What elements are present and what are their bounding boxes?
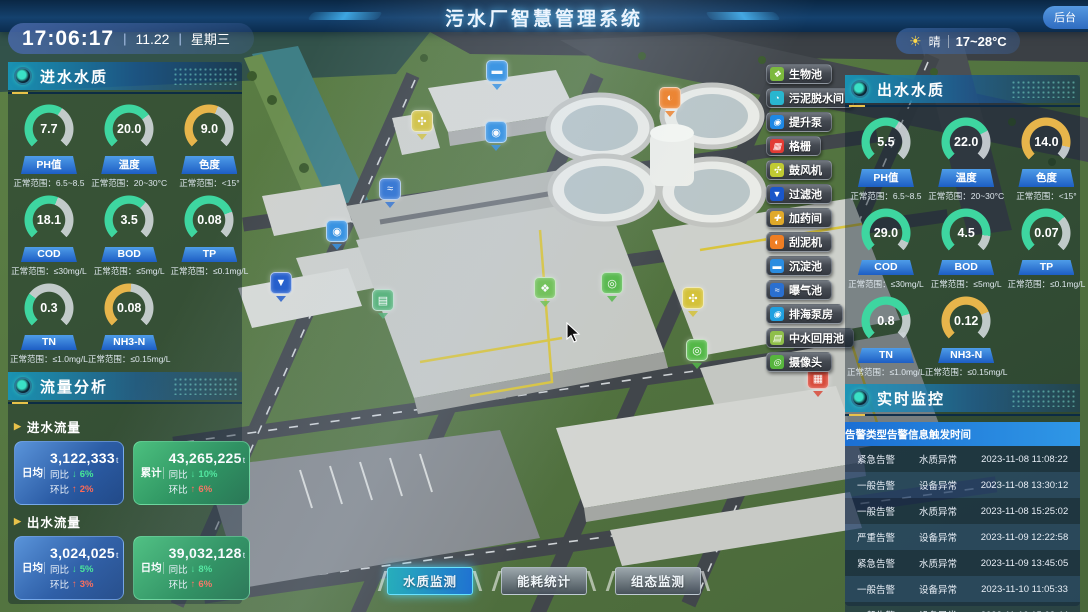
map-marker[interactable]: ▤ [372,289,394,319]
flow-card: 日均 3,122,333t 同比↓6% 环比↑2% [14,441,124,505]
divider [948,35,949,48]
section-icon [851,80,869,98]
flow-section-name: 出水流量 [27,512,81,531]
facility-button[interactable]: ◎ 摄像头 [766,352,832,372]
facility-label: 曝气池 [789,282,822,298]
facility-icon: ◔ [770,91,784,105]
arrow-down-icon: ↓ [72,469,77,480]
flow-card-body: 43,265,225t 同比↓10% 环比↑6% [169,450,246,496]
datetime-bar: 17:06:17 | 11.22 | 星期三 [8,23,254,54]
gauge-range: 正常范围：≤0.15mg/L [925,366,1008,378]
mom-line: 环比↑6% [169,482,246,496]
gauge-ring-wrap: 14.0 [1021,117,1071,167]
marker-icon: ▤ [372,289,394,311]
facility-button[interactable]: ◔ 污泥脱水间 [766,88,854,108]
facility-label: 中水回用池 [789,330,844,346]
facility-label: 鼓风机 [789,162,822,178]
marker-arrow-icon [491,145,501,151]
marker-icon: ❖ [534,277,556,299]
alarm-col-header: 告警类型 [845,427,887,442]
map-marker[interactable]: ◎ [686,339,708,369]
facility-label: 加药间 [789,210,822,226]
bottom-tab-label: 能耗统计 [517,575,571,589]
effluent-panel: 出水水质 5.5 PH值 正常范围：6.5~8.5 22.0 温度 正常范围：2… [845,75,1080,606]
yoy-line: 同比↓6% [50,467,119,481]
gauge-value: 20.0 [104,104,154,154]
header-deco-right [705,12,781,20]
alarm-info: 水质异常 [907,452,969,466]
gauge: 0.3 TN 正常范围：≤1.0mg/L [10,283,88,365]
alarm-row[interactable]: 一般告警 设备异常 2023-11-08 13:30:12 [845,472,1080,498]
header-deco-left [307,12,383,20]
gauge-range: 正常范围：≤0.15mg/L [88,353,171,365]
flow-value: 3,122,333t [50,450,119,466]
section-underline [8,402,242,404]
facility-list: ❖ 生物池 ◔ 污泥脱水间 ◉ 提升泵 ▦ 格栅 ✣ 鼓风机 ▼ 过滤池 ✚ 加… [766,64,854,372]
flow-card-body: 3,024,025t 同比↓5% 环比↑3% [50,545,119,591]
map-marker[interactable]: ✣ [682,287,704,317]
section-underline [8,92,242,94]
gauge-label: PH值 [21,156,77,174]
marker-arrow-icon [692,363,702,369]
facility-button[interactable]: ✚ 加药间 [766,208,832,228]
gauge-value: 0.12 [941,296,991,346]
gauge: 0.07 TP 正常范围：≤0.1mg/L [1008,208,1086,290]
facility-icon: ◉ [770,115,784,129]
section-icon [14,377,32,395]
gauge: 0.08 NH3-N 正常范围：≤0.15mg/L [88,283,171,365]
facility-label: 污泥脱水间 [789,90,844,106]
arrow-up-icon: ↑ [191,484,196,495]
bottom-tab[interactable]: 能耗统计 [501,567,587,595]
separator: | [123,31,126,46]
mom-line: 环比↑2% [50,482,119,496]
section-header-monitor: 实时监控 [845,384,1080,412]
alarm-time: 2023-11-08 15:25:02 [969,506,1080,517]
facility-icon: ✚ [770,211,784,225]
gauge-ring-wrap: 5.5 [861,117,911,167]
marker-icon: ▼ [270,272,292,294]
flow-section-label: ▶ 进水流量 [8,410,242,441]
marker-icon: ◎ [601,272,623,294]
alarm-info: 设备异常 [907,478,969,492]
alarm-row[interactable]: 一般告警 水质异常 2023-11-08 15:25:02 [845,498,1080,524]
page-title: 污水厂智慧管理系统 [445,4,643,31]
gauge: 22.0 温度 正常范围：20~30°C [925,117,1008,202]
gauge-value: 0.07 [1021,208,1071,258]
weather-temp: 17~28°C [956,34,1007,49]
marker-arrow-icon [813,391,823,397]
alarm-time: 2023-11-09 12:22:58 [969,532,1080,543]
alarm-info: 设备异常 [907,608,969,612]
flow-section-label: ▶ 出水流量 [8,505,242,536]
alarm-row[interactable]: 一般告警 设备异常 2023-11-10 11:05:33 [845,576,1080,602]
arrow-up-icon: ↑ [72,579,77,590]
gauge-ring-wrap: 0.3 [24,283,74,333]
facility-button[interactable]: ◐ 刮泥机 [766,232,832,252]
gauge-label: BOD [101,247,157,262]
facility-button[interactable]: ▼ 过滤池 [766,184,832,204]
marker-arrow-icon [332,244,342,250]
marker-arrow-icon [385,202,395,208]
facility-label: 刮泥机 [789,234,822,250]
weather-bar: ☀ 晴 17~28°C [896,28,1020,54]
alarm-type: 一般告警 [845,608,907,612]
marker-icon: ◉ [485,121,507,143]
flow-card-body: 39,032,128t 同比↓8% 环比↑6% [169,545,246,591]
yoy-line: 同比↓8% [169,562,246,576]
alarm-col-header: 告警信息 [887,427,929,442]
yoy-line: 同比↓5% [50,562,119,576]
gauge-label: 温度 [938,169,994,187]
marker-icon: ◐ [659,87,681,109]
backstage-button[interactable]: 后台 [1043,6,1088,29]
gauge-label: 温度 [101,156,157,174]
gauge-ring-wrap: 3.5 [104,195,154,245]
section-icon [14,67,32,85]
gauge-label: 色度 [1018,169,1074,187]
flow-card: 日均 39,032,128t 同比↓8% 环比↑6% [133,536,251,600]
influent-gauges: 7.7 PH值 正常范围：6.5~8.5 20.0 温度 正常范围：20~30°… [8,100,242,365]
gauge: 3.5 BOD 正常范围：≤5mg/L [88,195,171,277]
marker-arrow-icon [665,111,675,117]
gauge-value: 14.0 [1021,117,1071,167]
facility-label: 沉淀池 [789,258,822,274]
gauge-label: NH3-N [101,335,157,350]
flow-card-tag: 日均 [21,562,45,575]
gauge: 0.12 NH3-N 正常范围：≤0.15mg/L [925,296,1008,378]
sun-icon: ☀ [909,34,922,48]
gauge-value: 0.08 [184,195,234,245]
alarm-type: 严重告警 [845,530,907,544]
marker-arrow-icon [492,84,502,90]
facility-button[interactable]: ◉ 提升泵 [766,112,832,132]
influent-panel: 进水水质 7.7 PH值 正常范围：6.5~8.5 20.0 温度 正常范围：2… [8,62,242,604]
gauge: 5.5 PH值 正常范围：6.5~8.5 [847,117,925,202]
arrow-up-icon: ↑ [72,484,77,495]
gauge-value: 9.0 [184,104,234,154]
triangle-icon: ▶ [14,421,22,432]
facility-icon: ❖ [770,67,784,81]
bottom-tab-bar: 水质监测 能耗统计 组态监测 [387,567,701,595]
facility-button[interactable]: ▤ 中水回用池 [766,328,854,348]
gauge-label: PH值 [858,169,914,187]
gauge: 4.5 BOD 正常范围：≤5mg/L [925,208,1008,290]
gauge-ring-wrap: 7.7 [24,104,74,154]
marker-icon: ✣ [682,287,704,309]
gauge-value: 4.5 [941,208,991,258]
facility-button[interactable]: ✣ 鼓风机 [766,160,832,180]
gauge-range: 正常范围：≤1.0mg/L [10,353,88,365]
alarm-row[interactable]: 紧急告警 水质异常 2023-11-09 13:45:05 [845,550,1080,576]
map-marker[interactable]: ◉ [485,121,507,151]
marker-arrow-icon [417,134,427,140]
mom-line: 环比↑3% [50,577,119,591]
marker-icon: ✣ [411,110,433,132]
marker-icon: ◉ [326,220,348,242]
alarm-time: 2023-11-08 11:08:22 [969,454,1080,465]
alarm-type: 紧急告警 [845,556,907,570]
facility-icon: ◉ [770,307,784,321]
facility-icon: ✣ [770,163,784,177]
facility-icon: ◐ [770,235,784,249]
flow-section-name: 进水流量 [27,417,81,436]
gauge-range: 正常范围：20~30°C [91,177,167,189]
map-marker[interactable]: ◐ [659,87,681,117]
alarm-time: 2023-11-10 11:05:33 [969,584,1080,595]
facility-icon: ▤ [770,331,784,345]
gauge-ring-wrap: 9.0 [184,104,234,154]
triangle-icon: ▶ [14,516,22,527]
section-header-effluent: 出水水质 [845,75,1080,103]
facility-icon: ▦ [770,139,784,153]
alarm-type: 一般告警 [845,504,907,518]
weekday: 星期三 [191,29,230,48]
facility-button[interactable]: ▬ 沉淀池 [766,256,832,276]
marker-arrow-icon [688,311,698,317]
separator: | [178,31,181,46]
gauge-value: 0.3 [24,283,74,333]
map-marker[interactable]: ◎ [601,272,623,302]
gauge-ring-wrap: 29.0 [861,208,911,258]
flow-card-tag: 日均 [21,467,45,480]
alarm-type: 一般告警 [845,582,907,596]
arrow-down-icon: ↓ [191,564,196,575]
gauge-value: 5.5 [861,117,911,167]
facility-button[interactable]: ≈ 曝气池 [766,280,832,300]
gauge-ring-wrap: 22.0 [941,117,991,167]
gauge-label: TN [858,348,914,363]
alarm-time: 2023-11-08 13:30:12 [969,480,1080,491]
facility-button[interactable]: ◉ 排海泵房 [766,304,843,324]
gauge: 9.0 色度 正常范围：<15° [171,104,249,189]
flow-card-body: 3,122,333t 同比↓6% 环比↑2% [50,450,119,496]
gauge-ring-wrap: 0.07 [1021,208,1071,258]
alarm-table-header: 告警类型告警信息触发时间 [845,422,1080,446]
effluent-gauges: 5.5 PH值 正常范围：6.5~8.5 22.0 温度 正常范围：20~30°… [845,113,1080,378]
gauge-ring-wrap: 0.08 [104,283,154,333]
marker-icon: ◎ [686,339,708,361]
marker-arrow-icon [540,301,550,307]
alarm-type: 紧急告警 [845,452,907,466]
section-underline [845,105,1080,107]
section-title: 流量分析 [40,376,108,397]
facility-label: 摄像头 [789,354,822,370]
facility-icon: ≈ [770,283,784,297]
gauge-label: COD [21,247,77,262]
facility-label: 排海泵房 [789,306,833,322]
arrow-up-icon: ↑ [191,579,196,590]
alarm-info: 设备异常 [907,530,969,544]
arrow-down-icon: ↓ [72,564,77,575]
map-marker[interactable]: ▼ [270,272,292,302]
gauge-value: 18.1 [24,195,74,245]
gauge-label: 色度 [181,156,237,174]
bottom-tab[interactable]: 水质监测 [387,567,473,595]
gauge-label: TP [181,247,237,262]
marker-icon: ≈ [379,178,401,200]
weather-condition: 晴 [929,33,941,50]
gauge-range: 正常范围：<15° [1016,190,1076,202]
gauge-value: 7.7 [24,104,74,154]
facility-button[interactable]: ❖ 生物池 [766,64,832,84]
facility-label: 格栅 [789,138,811,154]
influent-flow-cards: 日均 3,122,333t 同比↓6% 环比↑2% 累计 43,265,225t… [8,441,242,505]
gauge-label: TN [21,335,77,350]
gauge-label: BOD [938,260,994,275]
facility-button[interactable]: ▦ 格栅 [766,136,821,156]
yoy-line: 同比↓10% [169,467,246,481]
mom-line: 环比↑6% [169,577,246,591]
flow-card-tag: 日均 [140,562,164,575]
gauge-ring-wrap: 0.8 [861,296,911,346]
marker-arrow-icon [607,296,617,302]
section-title: 实时监控 [877,388,945,409]
map-marker[interactable]: ❖ [534,277,556,307]
gauge-range: 正常范围：≤30mg/L [848,278,924,290]
alarm-table-body: 紧急告警 水质异常 2023-11-08 11:08:22 一般告警 设备异常 … [845,446,1080,612]
gauge-range: 正常范围：≤5mg/L [931,278,1002,290]
section-title: 进水水质 [40,66,108,87]
alarm-info: 水质异常 [907,556,969,570]
effluent-flow-cards: 日均 3,024,025t 同比↓5% 环比↑3% 日均 39,032,128t… [8,536,242,600]
section-underline [845,414,1080,416]
alarm-time: 2023-11-09 13:45:05 [969,558,1080,569]
arrow-down-icon: ↓ [191,469,196,480]
gauge-value: 0.08 [104,283,154,333]
facility-label: 生物池 [789,66,822,82]
gauge-range: 正常范围：<15° [179,177,239,189]
map-marker[interactable]: ✣ [411,110,433,140]
alarm-type: 一般告警 [845,478,907,492]
gauge-label: COD [858,260,914,275]
gauge-label: NH3-N [938,348,994,363]
alarm-row[interactable]: 一般告警 设备异常 2023-11-10 15:02:44 [845,602,1080,612]
gauge-ring-wrap: 0.08 [184,195,234,245]
dashboard-root: 污水厂智慧管理系统 17:06:17 | 11.22 | 星期三 ☀ 晴 17~… [0,0,1088,612]
gauge: 20.0 温度 正常范围：20~30°C [88,104,171,189]
gauge: 0.08 TP 正常范围：≤0.1mg/L [171,195,249,277]
bottom-tab-label: 水质监测 [403,575,457,589]
gauge: 14.0 色度 正常范围：<15° [1008,117,1086,202]
gauge-range: 正常范围：6.5~8.5 [850,190,921,202]
flow-value: 3,024,025t [50,545,119,561]
alarm-row[interactable]: 严重告警 设备异常 2023-11-09 12:22:58 [845,524,1080,550]
flow-card-tag: 累计 [140,467,164,480]
gauge: 29.0 COD 正常范围：≤30mg/L [847,208,925,290]
gauge-value: 29.0 [861,208,911,258]
gauge-range: 正常范围：20~30°C [928,190,1004,202]
marker-icon: ▬ [486,60,508,82]
map-marker[interactable]: ≈ [379,178,401,208]
section-icon [851,389,869,407]
gauge-range: 正常范围：≤30mg/L [11,265,87,277]
facility-icon: ▼ [770,187,784,201]
bottom-tab-label: 组态监测 [631,575,685,589]
flow-value: 39,032,128t [169,545,246,561]
facility-label: 提升泵 [789,114,822,130]
map-marker[interactable]: ◉ [326,220,348,250]
gauge-range: 正常范围：≤1.0mg/L [847,366,925,378]
alarm-info: 水质异常 [907,504,969,518]
facility-icon: ▬ [770,259,784,273]
gauge-range: 正常范围：6.5~8.5 [13,177,84,189]
gauge: 7.7 PH值 正常范围：6.5~8.5 [10,104,88,189]
gauge-range: 正常范围：≤0.1mg/L [1008,278,1086,290]
facility-icon: ◎ [770,355,784,369]
gauge-value: 22.0 [941,117,991,167]
gauge-ring-wrap: 0.12 [941,296,991,346]
gauge-range: 正常范围：≤0.1mg/L [171,265,249,277]
flow-card: 日均 3,024,025t 同比↓5% 环比↑3% [14,536,124,600]
date: 11.22 [135,31,169,47]
alarm-col-header: 触发时间 [929,427,971,442]
gauge: 18.1 COD 正常范围：≤30mg/L [10,195,88,277]
gauge: 0.8 TN 正常范围：≤1.0mg/L [847,296,925,378]
flow-value: 43,265,225t [169,450,246,466]
alarm-row[interactable]: 紧急告警 水质异常 2023-11-08 11:08:22 [845,446,1080,472]
bottom-tab[interactable]: 组态监测 [615,567,701,595]
flow-card: 累计 43,265,225t 同比↓10% 环比↑6% [133,441,251,505]
alarm-info: 设备异常 [907,582,969,596]
gauge-ring-wrap: 4.5 [941,208,991,258]
gauge-value: 3.5 [104,195,154,245]
gauge-ring-wrap: 18.1 [24,195,74,245]
gauge-label: TP [1018,260,1074,275]
clock: 17:06:17 [22,27,114,51]
section-header-flow: 流量分析 [8,372,242,400]
section-header-influent: 进水水质 [8,62,242,90]
gauge-value: 0.8 [861,296,911,346]
gauge-ring-wrap: 20.0 [104,104,154,154]
gauge-range: 正常范围：≤5mg/L [94,265,165,277]
section-title: 出水水质 [877,79,945,100]
facility-label: 过滤池 [789,186,822,202]
map-marker[interactable]: ▬ [486,60,508,90]
marker-arrow-icon [378,313,388,319]
marker-arrow-icon [276,296,286,302]
